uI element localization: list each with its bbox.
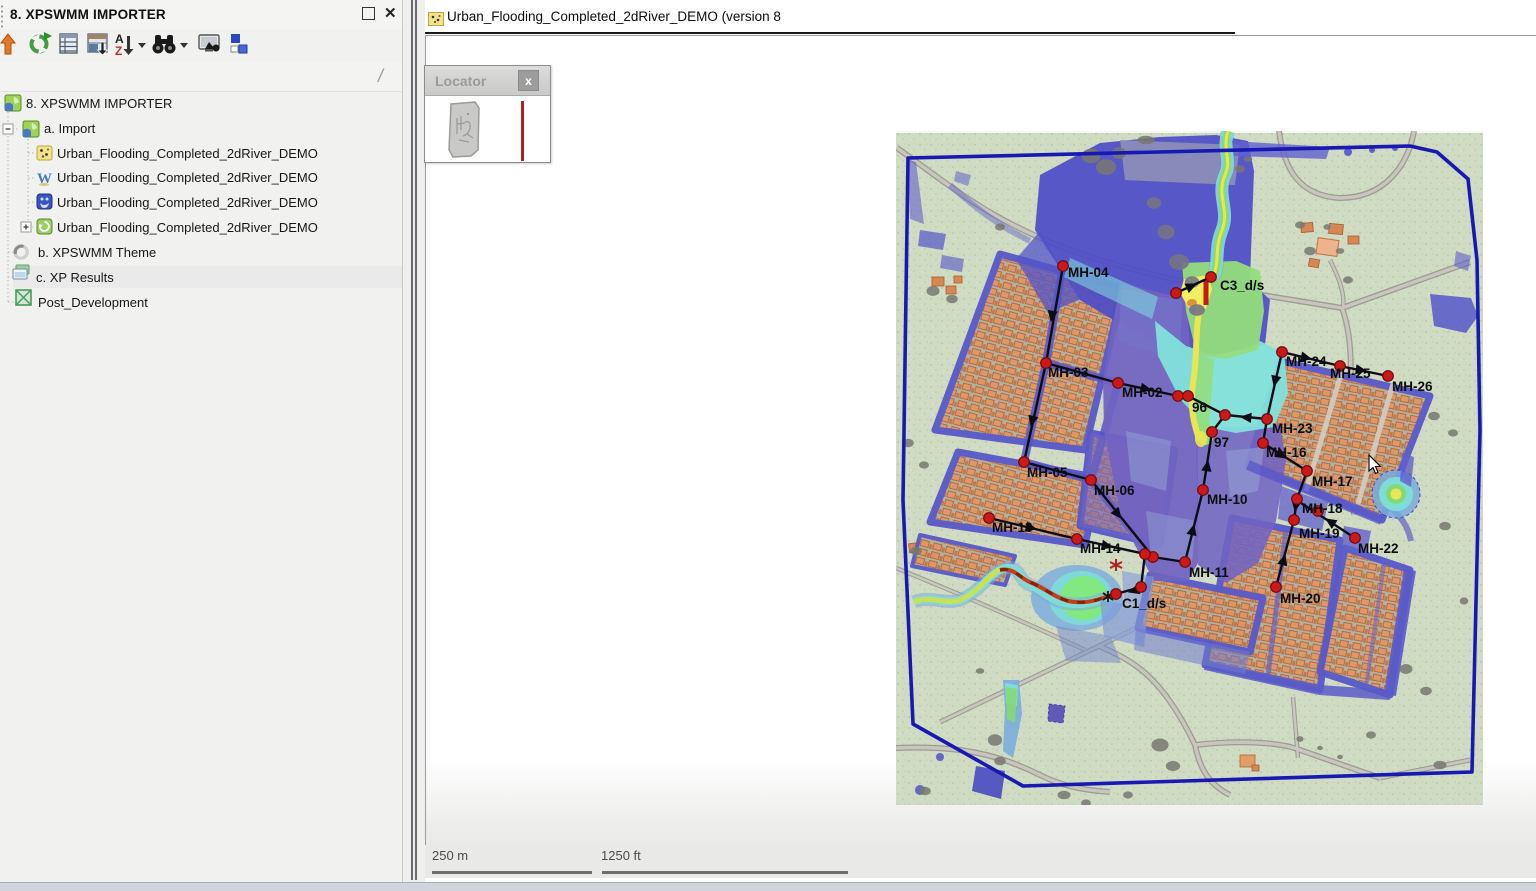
svg-text:MH-13: MH-13 (992, 520, 1033, 535)
svg-text:MH-20: MH-20 (1280, 591, 1321, 606)
svg-text:MH-17: MH-17 (1312, 474, 1353, 489)
svg-text:MH-25: MH-25 (1330, 366, 1371, 381)
svg-text:MH-26: MH-26 (1392, 379, 1433, 394)
svg-text:MH-14: MH-14 (1080, 541, 1121, 556)
svg-text:MH-03: MH-03 (1048, 365, 1089, 380)
svg-text:MH-16: MH-16 (1266, 445, 1307, 460)
svg-text:MH-06: MH-06 (1094, 483, 1135, 498)
svg-text:MH-05: MH-05 (1027, 465, 1068, 480)
svg-text:C3_d/s: C3_d/s (1220, 278, 1264, 293)
svg-text:MH-02: MH-02 (1122, 385, 1163, 400)
svg-text:MH-24: MH-24 (1286, 354, 1327, 369)
svg-text:MH-22: MH-22 (1358, 541, 1399, 556)
svg-text:MH-10: MH-10 (1207, 492, 1248, 507)
svg-text:96: 96 (1192, 400, 1208, 415)
svg-text:C1_d/s: C1_d/s (1122, 596, 1166, 611)
svg-text:MH-11: MH-11 (1189, 565, 1229, 580)
svg-text:MH-19: MH-19 (1299, 526, 1340, 541)
svg-text:Z: Z (115, 44, 122, 58)
svg-text:MH-04: MH-04 (1068, 265, 1109, 280)
svg-text:MH-23: MH-23 (1272, 421, 1313, 436)
svg-text:97: 97 (1214, 435, 1229, 450)
svg-text:MH-18: MH-18 (1302, 501, 1343, 516)
